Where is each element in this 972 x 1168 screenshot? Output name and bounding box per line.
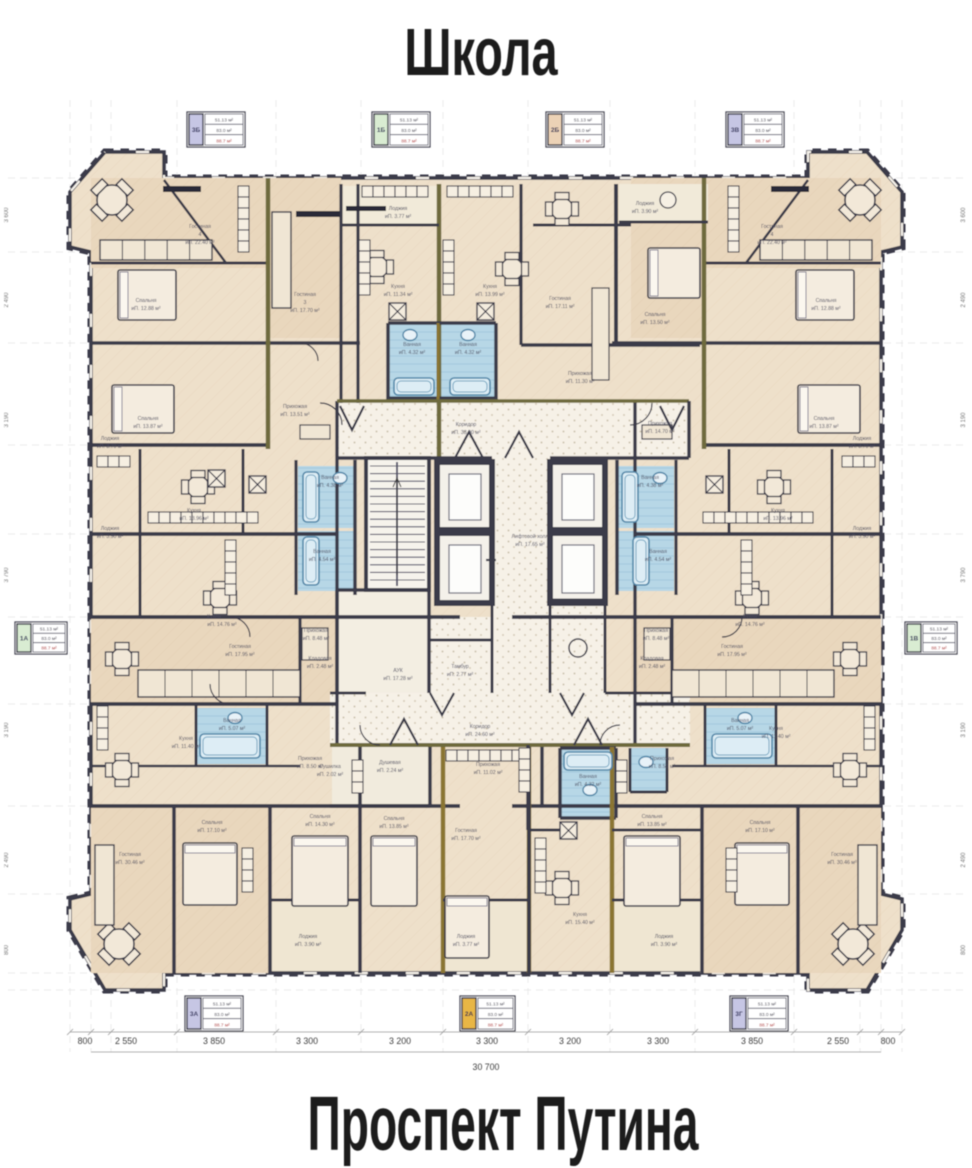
svg-text:иП. 17.65 м²: иП. 17.65 м² (515, 542, 544, 548)
svg-text:88.7 м²: 88.7 м² (214, 1022, 230, 1028)
svg-text:Ванная: Ванная (459, 342, 477, 348)
svg-text:иП. 13.51 м²: иП. 13.51 м² (280, 412, 309, 418)
svg-text:88.7 м²: 88.7 м² (216, 138, 232, 144)
svg-text:Тамбур: Тамбур (451, 664, 469, 670)
svg-text:иП. 11.02 м²: иП. 11.02 м² (474, 770, 503, 776)
svg-text:800: 800 (961, 944, 967, 955)
svg-text:иП. 38.90 м²: иП. 38.90 м² (451, 430, 480, 436)
svg-text:Гостиная: Гостиная (455, 828, 477, 834)
svg-text:3 200: 3 200 (559, 1036, 581, 1046)
svg-text:иП. 4.32 м²: иП. 4.32 м² (455, 350, 482, 356)
svg-text:88.7 м²: 88.7 м² (488, 1022, 504, 1028)
svg-text:2 490: 2 490 (4, 852, 10, 868)
svg-text:4: 4 (771, 232, 774, 238)
svg-text:2 550: 2 550 (115, 1036, 137, 1046)
svg-text:Прихожая: Прихожая (476, 762, 500, 768)
svg-text:иП. 30.46 м²: иП. 30.46 м² (115, 860, 144, 866)
svg-text:1Б: 1Б (377, 127, 386, 134)
svg-text:Спальня: Спальня (750, 820, 771, 826)
svg-text:51.13 м²: 51.13 м² (758, 1002, 777, 1008)
svg-text:Ванная: Ванная (403, 342, 421, 348)
svg-text:3 850: 3 850 (741, 1036, 763, 1046)
svg-text:51.13 м²: 51.13 м² (40, 627, 59, 633)
svg-text:иП. 3.90 м²: иП. 3.90 м² (97, 534, 124, 540)
svg-text:51.13 м²: 51.13 м² (574, 118, 593, 124)
svg-text:Душевая: Душевая (379, 760, 401, 766)
svg-text:Лоджия: Лоджия (389, 206, 408, 212)
svg-text:Гостиная: Гостиная (229, 644, 251, 650)
svg-text:3 300: 3 300 (476, 1036, 498, 1046)
svg-text:3А: 3А (190, 1011, 199, 1018)
svg-text:Кухня: Кухня (391, 284, 405, 290)
svg-text:Ванная: Ванная (579, 774, 597, 780)
svg-text:Коридор: Коридор (470, 724, 491, 730)
svg-text:Кухня: Кухня (187, 508, 201, 514)
svg-text:Кухня: Кухня (207, 614, 221, 620)
svg-text:Гостиная: Гостиная (721, 644, 743, 650)
svg-text:Прихожая: Прихожая (283, 404, 307, 410)
svg-text:иП. 17.10 м²: иП. 17.10 м² (197, 828, 226, 834)
svg-text:иП. 14.70 м²: иП. 14.70 м² (645, 429, 674, 435)
svg-text:3 790: 3 790 (4, 567, 10, 583)
svg-text:2Б: 2Б (551, 127, 560, 134)
svg-text:иП. 5.07 м²: иП. 5.07 м² (727, 726, 754, 732)
svg-text:иП. 5.07 м²: иП. 5.07 м² (219, 726, 246, 732)
svg-text:3 190: 3 190 (961, 722, 967, 738)
svg-text:Ванная: Ванная (731, 718, 749, 724)
svg-text:иП. 12.88 м²: иП. 12.88 м² (131, 306, 160, 312)
svg-text:иП. 3.90 м²: иП. 3.90 м² (849, 534, 876, 540)
svg-text:иП. 11.30 м²: иП. 11.30 м² (566, 379, 595, 385)
svg-text:Спальня: Спальня (202, 820, 223, 826)
svg-text:Лоджия: Лоджия (457, 934, 476, 940)
svg-text:Спальня: Спальня (310, 814, 331, 820)
svg-text:51.13 м²: 51.13 м² (754, 118, 773, 124)
svg-text:Гостиная: Гостиная (761, 224, 783, 230)
svg-text:иП. 15.40 м²: иП. 15.40 м² (565, 920, 594, 926)
svg-text:иП. 13.85 м²: иП. 13.85 м² (637, 822, 666, 828)
svg-text:иП. 13.87 м²: иП. 13.87 м² (809, 424, 838, 430)
svg-text:иП. 17.95 м²: иП. 17.95 м² (225, 652, 254, 658)
svg-text:3Г: 3Г (735, 1011, 743, 1018)
svg-text:иП. 4.38 м²: иП. 4.38 м² (317, 483, 344, 489)
svg-text:Коридор: Коридор (456, 422, 477, 428)
svg-text:Гостиная: Гостиная (831, 852, 853, 858)
svg-text:АУК: АУК (393, 668, 403, 674)
svg-text:51.13 м²: 51.13 м² (930, 627, 949, 633)
svg-text:3 850: 3 850 (203, 1036, 225, 1046)
svg-text:иП. 13.96 м²: иП. 13.96 м² (763, 516, 792, 522)
svg-text:Лоджия: Лоджия (853, 436, 872, 442)
svg-text:2 490: 2 490 (4, 292, 10, 308)
svg-text:3 600: 3 600 (4, 207, 10, 223)
svg-text:иП. 4.54 м²: иП. 4.54 м² (309, 557, 336, 563)
svg-text:Кладовая: Кладовая (640, 656, 663, 662)
svg-text:3 600: 3 600 (961, 207, 967, 223)
svg-text:иП. 2.77 м²: иП. 2.77 м² (447, 672, 474, 678)
svg-text:Спальня: Спальня (816, 298, 837, 304)
svg-text:Прихожая: Прихожая (648, 421, 672, 427)
svg-text:88.7 м²: 88.7 м² (931, 645, 947, 651)
svg-text:83.0 м²: 83.0 м² (214, 1012, 230, 1018)
svg-text:3В: 3В (731, 127, 740, 134)
svg-text:83.0 м²: 83.0 м² (401, 128, 417, 134)
svg-text:Прихожая: Прихожая (568, 371, 592, 377)
svg-text:51.13 м²: 51.13 м² (215, 118, 234, 124)
svg-text:800: 800 (4, 944, 10, 955)
svg-text:Спальня: Спальня (814, 416, 835, 422)
svg-text:Спальня: Спальня (642, 814, 663, 820)
svg-text:88.7 м²: 88.7 м² (41, 645, 57, 651)
svg-text:иП. 14.76 м²: иП. 14.76 м² (735, 622, 764, 628)
svg-text:Прихожая: Прихожая (304, 628, 328, 634)
svg-text:Ванная: Ванная (223, 718, 241, 724)
svg-text:иП. 17.28 м²: иП. 17.28 м² (383, 676, 412, 682)
svg-text:Ванная: Ванная (321, 475, 339, 481)
svg-text:88.7 м²: 88.7 м² (401, 138, 417, 144)
svg-text:3 190: 3 190 (961, 412, 967, 428)
svg-text:иП. 17.11 м²: иП. 17.11 м² (546, 304, 575, 310)
svg-text:иП. 4.32 м²: иП. 4.32 м² (575, 782, 602, 788)
svg-text:Гостиная: Гостиная (119, 852, 141, 858)
svg-text:иП. 14.30 м²: иП. 14.30 м² (305, 822, 334, 828)
svg-text:Ванная: Ванная (313, 549, 331, 555)
svg-text:Гостиная: Гостиная (189, 224, 211, 230)
svg-text:Гостиная: Гостиная (294, 292, 316, 298)
svg-text:иП. 11.34 м²: иП. 11.34 м² (384, 292, 413, 298)
svg-text:Лоджия: Лоджия (636, 201, 655, 207)
svg-text:Лифтовой холл: Лифтовой холл (512, 533, 549, 540)
svg-text:иП. 3.77 м²: иП. 3.77 м² (453, 942, 480, 948)
svg-text:Лоджия: Лоджия (655, 934, 674, 940)
svg-text:иП. 4.32 м²: иП. 4.32 м² (399, 350, 426, 356)
svg-text:83.0 м²: 83.0 м² (755, 128, 771, 134)
svg-text:иП. 22.40 м²: иП. 22.40 м² (757, 240, 786, 246)
svg-text:Кухня: Кухня (483, 284, 497, 290)
svg-text:3Б: 3Б (192, 127, 201, 134)
svg-text:Лоджия: Лоджия (299, 934, 318, 940)
svg-text:иП. 3.90 м²: иП. 3.90 м² (632, 209, 659, 215)
svg-text:иП. 13.87 м²: иП. 13.87 м² (133, 424, 162, 430)
svg-text:3 190: 3 190 (4, 722, 10, 738)
svg-text:иП. 4.38 м²: иП. 4.38 м² (637, 483, 664, 489)
svg-text:83.0 м²: 83.0 м² (575, 128, 591, 134)
svg-text:3 300: 3 300 (296, 1036, 318, 1046)
svg-text:иП. 3.77 м²: иП. 3.77 м² (385, 214, 412, 220)
svg-text:Кухня: Кухня (573, 912, 587, 918)
svg-text:иП. 3.70 м²: иП. 3.70 м² (97, 444, 124, 450)
svg-text:иП. 13.50 м²: иП. 13.50 м² (640, 320, 669, 326)
svg-text:3 200: 3 200 (389, 1036, 411, 1046)
svg-text:Кладовая: Кладовая (308, 656, 331, 662)
svg-text:Проспект Путина: Проспект Путина (308, 1082, 699, 1167)
svg-text:Ванная: Ванная (641, 475, 659, 481)
svg-text:иП. 17.95 м²: иП. 17.95 м² (717, 652, 746, 658)
svg-text:51.13 м²: 51.13 м² (213, 1002, 232, 1008)
svg-text:иП. 17.70 м²: иП. 17.70 м² (451, 836, 480, 842)
svg-text:иП. 3.90 м²: иП. 3.90 м² (295, 942, 322, 948)
svg-text:800: 800 (881, 1036, 896, 1046)
svg-text:Сушилка: Сушилка (319, 764, 341, 770)
svg-text:83.0 м²: 83.0 м² (931, 636, 947, 642)
svg-text:Лоджия: Лоджия (101, 526, 120, 532)
svg-text:иП. 8.48 м²: иП. 8.48 м² (303, 636, 330, 642)
svg-text:иП. 2.24 м²: иП. 2.24 м² (377, 768, 404, 774)
svg-text:Ванная: Ванная (649, 549, 667, 555)
svg-text:иП. 13.99 м²: иП. 13.99 м² (475, 292, 504, 298)
svg-text:Спальня: Спальня (138, 416, 159, 422)
svg-text:1А: 1А (20, 636, 29, 643)
svg-text:88.7 м²: 88.7 м² (575, 138, 591, 144)
svg-text:51.13 м²: 51.13 м² (486, 1002, 505, 1008)
svg-text:Гостиная: Гостиная (549, 296, 571, 302)
svg-text:иП. 17.70 м²: иП. 17.70 м² (290, 308, 319, 314)
svg-text:иП. 17.10 м²: иП. 17.10 м² (745, 828, 774, 834)
svg-text:иП. 12.88 м²: иП. 12.88 м² (811, 306, 840, 312)
svg-text:иП. 3.70 м²: иП. 3.70 м² (849, 444, 876, 450)
svg-text:83.0 м²: 83.0 м² (216, 128, 232, 134)
svg-text:иП. 11.40 м²: иП. 11.40 м² (172, 744, 201, 750)
svg-text:иП. 11.40 м²: иП. 11.40 м² (762, 734, 791, 740)
svg-text:иП. 3.90 м²: иП. 3.90 м² (651, 942, 678, 948)
svg-text:Лоджия: Лоджия (853, 526, 872, 532)
svg-text:иП. 2.02 м²: иП. 2.02 м² (317, 772, 344, 778)
svg-text:иП. 4.54 м²: иП. 4.54 м² (645, 557, 672, 563)
svg-text:Кухня: Кухня (771, 508, 785, 514)
svg-text:51.13 м²: 51.13 м² (400, 118, 419, 124)
svg-text:800: 800 (78, 1036, 93, 1046)
svg-text:иП. 2.48 м²: иП. 2.48 м² (307, 664, 334, 670)
svg-text:Прихожая: Прихожая (650, 756, 674, 762)
svg-text:83.0 м²: 83.0 м² (41, 636, 57, 642)
svg-text:Кухня: Кухня (179, 736, 193, 742)
svg-text:3: 3 (304, 300, 307, 306)
svg-text:3 190: 3 190 (4, 412, 10, 428)
svg-text:Спальня: Спальня (136, 298, 157, 304)
svg-text:иП. 13.96 м²: иП. 13.96 м² (179, 516, 208, 522)
svg-text:иП. 22.40 м²: иП. 22.40 м² (185, 240, 214, 246)
svg-text:иП. 8.48 м²: иП. 8.48 м² (643, 636, 670, 642)
svg-text:83.0 м²: 83.0 м² (759, 1012, 775, 1018)
svg-text:2А: 2А (465, 1011, 474, 1018)
svg-text:иП. 13.85 м²: иП. 13.85 м² (379, 824, 408, 830)
svg-text:3 790: 3 790 (961, 567, 967, 583)
svg-text:Спальня: Спальня (384, 816, 405, 822)
svg-text:иП. 14.76 м²: иП. 14.76 м² (207, 622, 236, 628)
svg-text:30 700: 30 700 (473, 1062, 500, 1072)
svg-text:1В: 1В (910, 636, 919, 643)
svg-text:Прихожая: Прихожая (644, 628, 668, 634)
svg-text:88.7 м²: 88.7 м² (759, 1022, 775, 1028)
svg-text:Лоджия: Лоджия (101, 436, 120, 442)
svg-text:2 550: 2 550 (827, 1036, 849, 1046)
svg-text:Кухня: Кухня (743, 614, 757, 620)
svg-text:2 490: 2 490 (961, 852, 967, 868)
svg-text:Кухня: Кухня (769, 726, 783, 732)
svg-text:Школа: Школа (404, 16, 558, 90)
svg-text:2 490: 2 490 (961, 292, 967, 308)
svg-text:4: 4 (199, 232, 202, 238)
svg-text:Прихожая: Прихожая (298, 756, 322, 762)
svg-text:иП. 2.48 м²: иП. 2.48 м² (639, 664, 666, 670)
svg-text:83.0 м²: 83.0 м² (488, 1012, 504, 1018)
svg-text:иП. 24.60 м²: иП. 24.60 м² (465, 732, 494, 738)
svg-text:иП. 30.46 м²: иП. 30.46 м² (827, 860, 856, 866)
svg-text:иП. 8.50 м²: иП. 8.50 м² (649, 764, 676, 770)
svg-text:Спальня: Спальня (645, 312, 666, 318)
svg-text:3 300: 3 300 (647, 1036, 669, 1046)
svg-text:88.7 м²: 88.7 м² (755, 138, 771, 144)
